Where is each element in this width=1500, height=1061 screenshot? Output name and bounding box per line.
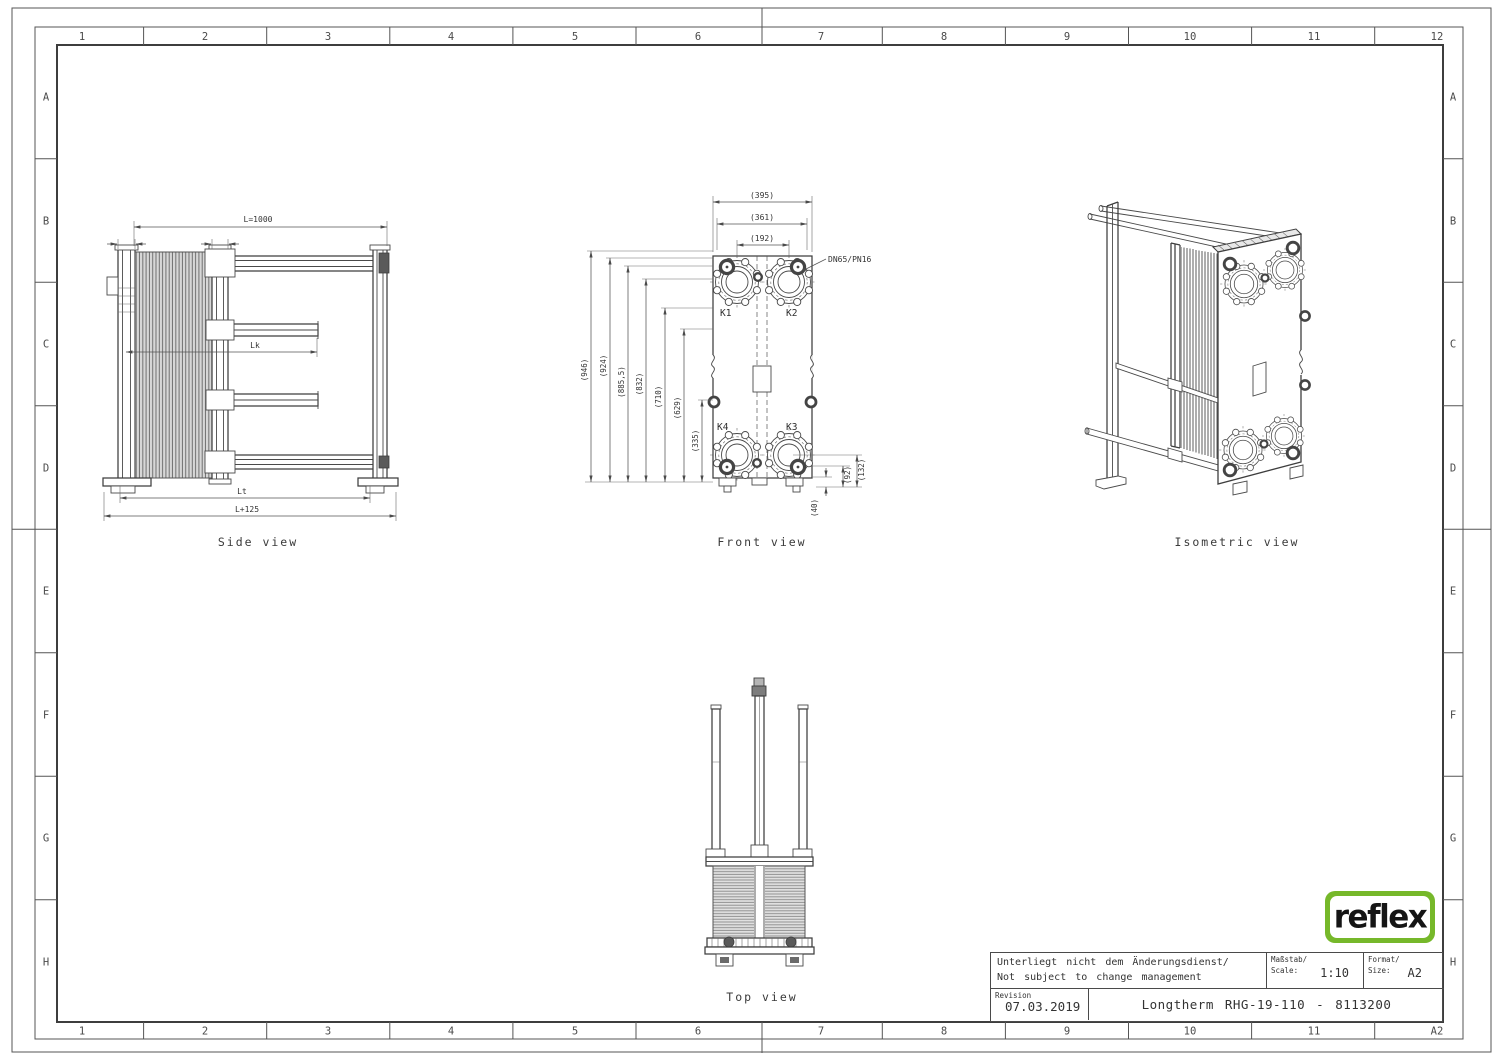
grid-label: D: [43, 463, 49, 475]
side-view-label: Side view: [218, 535, 298, 549]
grid-label: C: [1450, 339, 1456, 351]
front-view-left-dimensions: (946) (924) (885,5) (832) (710) (629) (3…: [580, 251, 713, 482]
grid-label: 3: [325, 1026, 331, 1038]
format-label-en: Size:: [1364, 964, 1444, 975]
technical-drawing: 1 2 3 4 5 6 7 8 9 10 11 12 1 2 3 4 5 6 7…: [0, 0, 1500, 1061]
front-view-label: Front view: [717, 535, 806, 549]
grid-label: G: [1450, 833, 1456, 845]
isometric-view-drawing: Isometric view: [1085, 202, 1310, 549]
grid-label: D: [1450, 463, 1456, 475]
drawing-sheet: 1 2 3 4 5 6 7 8 9 10 11 12 1 2 3 4 5 6 7…: [0, 0, 1500, 1061]
dim-label-335: (335): [691, 430, 700, 453]
dim-label-832: (832): [635, 373, 644, 396]
side-view-drawing: L=1000 Lk Lt L+125 Side view: [103, 215, 398, 549]
grid-label: 5: [572, 31, 578, 43]
grid-label: H: [43, 957, 49, 969]
port-label-k1: K1: [720, 308, 732, 319]
grid-row-labels-right: A B C D E F G H: [1450, 92, 1457, 969]
drawing-title: Longtherm RHG-19-110 - 8113200: [1089, 989, 1444, 1020]
dim-label-l-plus-125: L+125: [235, 505, 259, 514]
grid-label: 9: [1064, 31, 1070, 43]
grid-label: E: [43, 586, 49, 598]
dim-label-lk: Lk: [250, 341, 260, 350]
top-view-drawing: Top view: [705, 678, 814, 1004]
grid-label: 6: [695, 31, 701, 43]
title-block-revision-cell: Revision 07.03.2019: [991, 989, 1089, 1020]
grid-label: 8: [941, 1026, 947, 1038]
reflex-logo-inner: reflex: [1330, 896, 1430, 938]
title-block: Unterliegt nicht dem Änderungsdienst/ No…: [990, 952, 1443, 1022]
port-label-k3: K3: [786, 422, 797, 433]
dim-label-395: (395): [750, 191, 774, 200]
grid-label: 9: [1064, 1026, 1070, 1038]
dim-label-132: (132): [857, 459, 866, 482]
grid-label: 7: [818, 31, 824, 43]
grid-label: A: [43, 92, 50, 104]
grid-label: H: [1450, 957, 1456, 969]
grid-label: 11: [1308, 31, 1321, 43]
format-label-de: Format/: [1364, 953, 1444, 964]
dim-label-lt: Lt: [237, 487, 247, 496]
grid-label: A2: [1431, 1026, 1444, 1038]
title-block-format-cell: Format/ Size: A2: [1364, 953, 1444, 989]
grid-label: 11: [1308, 1026, 1321, 1038]
dim-label-710: (710): [654, 386, 663, 409]
grid-label: F: [1450, 710, 1456, 722]
grid-label: 10: [1184, 1026, 1197, 1038]
grid-column-labels-bottom: 1 2 3 4 5 6 7 8 9 10 11 A2: [79, 1026, 1443, 1038]
front-view-drawing: (395) (361) (192) DN65/PN16 K1 K2 K3 K4 …: [580, 191, 872, 549]
title-block-scale-cell: Maßstab/ Scale: 1:10: [1267, 953, 1364, 989]
grid-label: G: [43, 833, 49, 845]
grid-row-labels-left: A B C D E F G H: [43, 92, 50, 969]
reflex-logo-text: reflex: [1334, 898, 1426, 935]
grid-label: A: [1450, 92, 1457, 104]
isometric-view-label: Isometric view: [1175, 535, 1300, 549]
dim-label-192: (192): [750, 234, 774, 243]
grid-label: 2: [202, 31, 208, 43]
grid-label: F: [43, 710, 49, 722]
grid-label: C: [43, 339, 49, 351]
grid-label: E: [1450, 586, 1456, 598]
grid-label: 5: [572, 1026, 578, 1038]
front-view-top-dimensions: (395) (361) (192): [713, 191, 812, 258]
format-value: A2: [1408, 966, 1422, 980]
connection-note-dn65-pn16: DN65/PN16: [828, 255, 872, 264]
grid-label: 4: [448, 31, 454, 43]
title-block-change-note: Unterliegt nicht dem Änderungsdienst/ No…: [991, 953, 1267, 989]
grid-label: B: [1450, 216, 1456, 228]
dim-label-629: (629): [673, 397, 682, 420]
change-note-line-de: Unterliegt nicht dem Änderungsdienst/: [997, 955, 1260, 970]
grid-label: 7: [818, 1026, 824, 1038]
dim-label-40: (40): [810, 499, 819, 517]
grid-label: 3: [325, 31, 331, 43]
grid-label: 6: [695, 1026, 701, 1038]
scale-label-de: Maßstab/: [1267, 953, 1363, 964]
dim-label-946: (946): [580, 359, 589, 382]
dim-label-overall-length: L=1000: [244, 215, 273, 224]
port-label-k4: K4: [717, 422, 729, 433]
top-view-label: Top view: [726, 990, 797, 1004]
grid-label: 1: [79, 1026, 85, 1038]
change-note-line-en: Not subject to change management: [997, 970, 1260, 985]
revision-date: 07.03.2019: [1005, 999, 1080, 1014]
grid-label: 12: [1431, 31, 1444, 43]
grid-label: 1: [79, 31, 85, 43]
dim-label-924: (924): [599, 355, 608, 378]
dim-label-92: (92): [843, 466, 852, 484]
port-label-k2: K2: [786, 308, 797, 319]
grid-column-labels-top: 1 2 3 4 5 6 7 8 9 10 11 12: [79, 31, 1443, 43]
grid-label: B: [43, 216, 49, 228]
grid-label: 8: [941, 31, 947, 43]
reflex-logo: reflex: [1325, 891, 1435, 943]
grid-label: 4: [448, 1026, 454, 1038]
grid-label: 10: [1184, 31, 1197, 43]
dim-label-361: (361): [750, 213, 774, 222]
grid-label: 2: [202, 1026, 208, 1038]
dim-label-885-5: (885,5): [617, 366, 626, 398]
scale-value: 1:10: [1320, 966, 1349, 980]
